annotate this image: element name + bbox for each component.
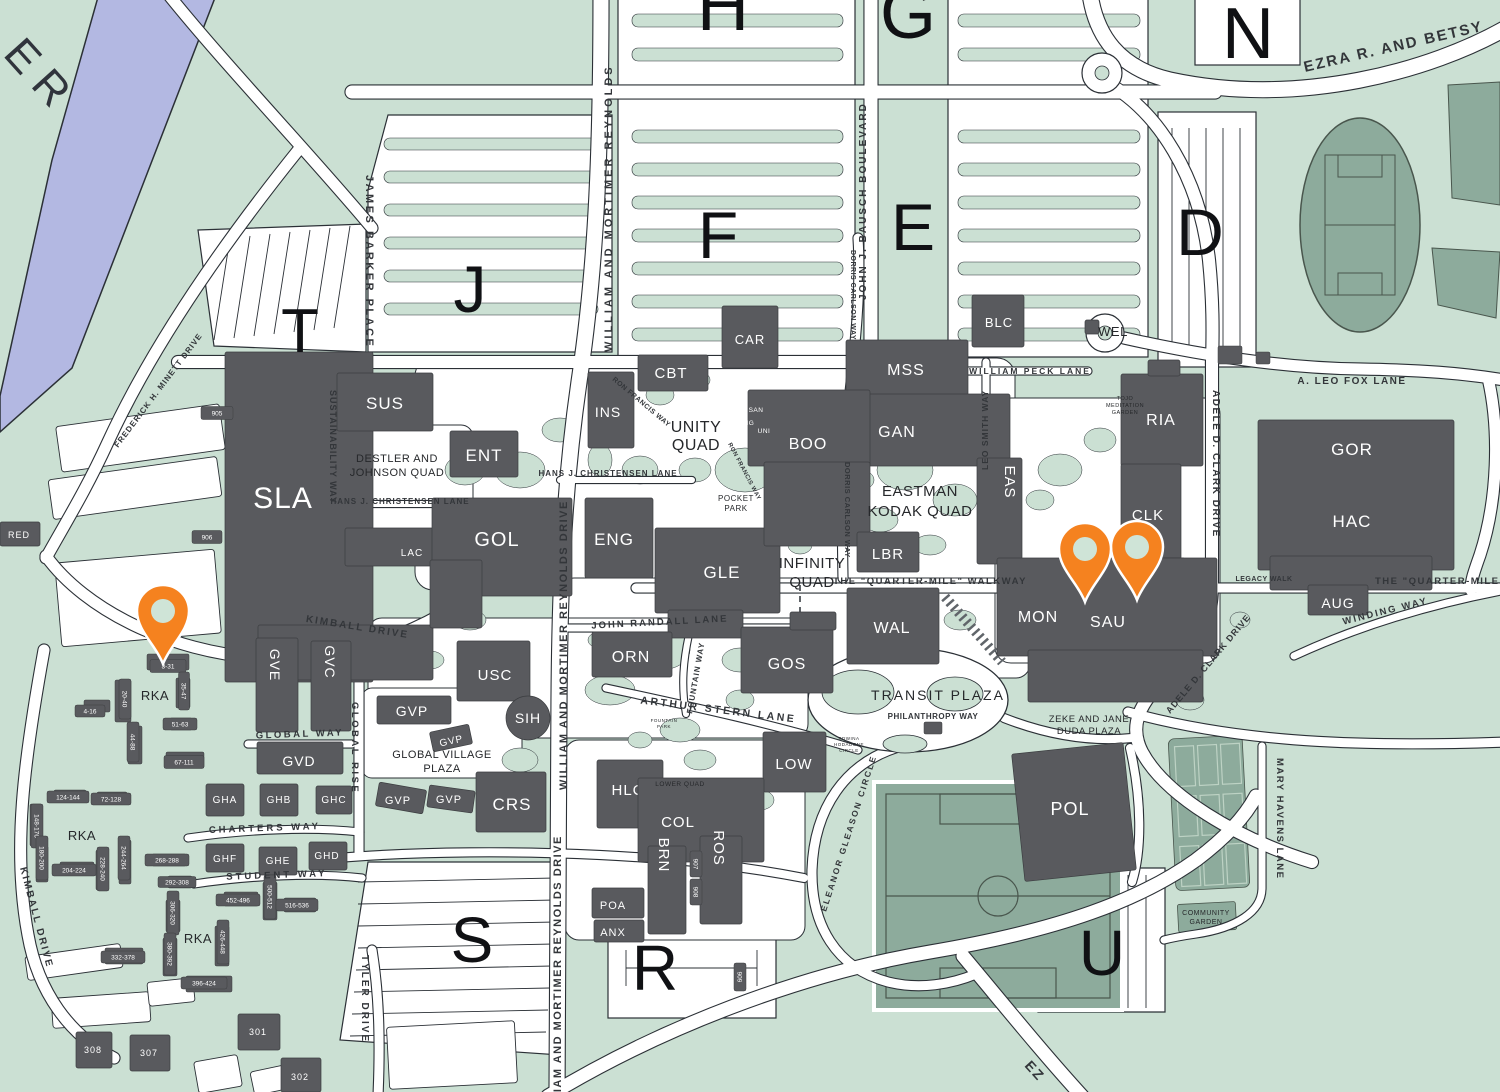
lawn-island <box>502 748 538 772</box>
building-label-eas: EAS <box>1001 465 1018 498</box>
building-label-mon: MON <box>1018 609 1058 626</box>
chip-180-200[interactable]: 180-200 <box>36 836 48 880</box>
chip-906[interactable]: 906 <box>192 531 222 544</box>
place-label-destler-johnson-quad-0: DESTLER AND <box>356 453 438 465</box>
street-label-tyler-drive: TYLER DRIVE <box>359 955 370 1043</box>
building-mon[interactable]: MON <box>997 558 1217 656</box>
building-b301[interactable]: 301 <box>238 1014 280 1050</box>
place-unity-quad: UNITYQUAD <box>671 419 722 454</box>
lot-letter-s: S <box>451 904 494 976</box>
chip-268-288[interactable]: 268-288 <box>145 854 189 866</box>
lot-letter-r: R <box>632 932 678 1004</box>
place-label-lower-quad-0: LOWER QUAD <box>655 781 704 788</box>
building-ghb[interactable]: GHB <box>260 784 298 816</box>
building-label-sih: SIH <box>515 710 541 726</box>
chip-label-909: 909 <box>736 972 743 983</box>
stands-east <box>1448 82 1500 205</box>
parking-strip <box>958 229 1140 242</box>
building-label-ghe: GHE <box>266 856 291 867</box>
parking-strip <box>958 262 1140 275</box>
building-label-ria: RIA <box>1146 412 1176 429</box>
lot-letter-t: T <box>281 297 319 366</box>
chip-label-228-240: 228-240 <box>99 857 106 881</box>
chip-label-44-88: 44-88 <box>129 734 136 751</box>
parking-strip <box>632 48 843 61</box>
building-brn[interactable]: BRN <box>648 838 686 934</box>
place-label-transit-plaza-0: TRANSIT PLAZA <box>871 687 1005 703</box>
lawn-island <box>1026 490 1054 510</box>
chip-label-35-47: 35-47 <box>180 683 187 700</box>
place-label-global-village-plaza-1: PLAZA <box>423 763 461 775</box>
building-b302[interactable]: 302 <box>281 1058 321 1092</box>
street-label-james-barker: JAMES BARKER PLACE <box>363 175 375 348</box>
building-wel-bldg[interactable] <box>1085 320 1099 334</box>
pin-hole <box>151 599 175 623</box>
chip-label-72-128: 72-128 <box>101 796 122 803</box>
lot-letter-f: F <box>698 198 738 272</box>
place-rka-3: RKA <box>184 931 212 946</box>
parking-strip <box>384 237 598 249</box>
place-uni: UNI <box>758 428 771 435</box>
building-label-low: LOW <box>775 756 812 773</box>
place-zeke-duda-plaza: ZEKE AND JANEDUDA PLAZA <box>1049 714 1129 737</box>
building-label-wal: WAL <box>873 620 910 637</box>
chip-228-240[interactable]: 228-240 <box>97 847 109 891</box>
chip-label-426-448: 426-448 <box>219 930 226 954</box>
street-label-reynolds-south: WILLIAM AND MORTIMER REYNOLDS DRIVE <box>552 835 564 1092</box>
street-label-carlson-south: DORRIS CARLSON WAY <box>843 462 852 558</box>
street-label-william-peck: WILLIAM PECK LANE <box>969 366 1091 376</box>
place-label-rka-1-0: RKA <box>141 688 169 703</box>
place-transit-plaza: TRANSIT PLAZA <box>871 687 1005 703</box>
parking-strip <box>958 14 1140 27</box>
building-label-ins: INS <box>595 404 621 420</box>
chip-label-148-176: 148-176 <box>33 814 40 838</box>
building-label-ent: ENT <box>466 446 503 465</box>
plaza-island-3 <box>883 735 927 753</box>
chip-292-308[interactable]: 292-308 <box>158 877 196 888</box>
pin-hole <box>1125 535 1149 559</box>
building-label-lbr: LBR <box>872 546 904 563</box>
building-sih[interactable]: SIH <box>506 696 550 740</box>
building-gha[interactable]: GHA <box>206 784 244 816</box>
building-label-poa: POA <box>600 900 626 912</box>
chip-500-512[interactable]: 500-512 <box>264 875 276 919</box>
chip-label-332-378: 332-378 <box>111 954 135 961</box>
building-blc[interactable]: BLC <box>972 295 1024 347</box>
chip-label-500-512: 500-512 <box>266 885 273 909</box>
chip-label-51-63: 51-63 <box>172 721 189 728</box>
place-label-vig-0: VIG <box>742 420 755 427</box>
chip-204-224[interactable]: 204-224 <box>52 864 96 876</box>
street-label-quarter-mile-east: THE "QUARTER-MILE" WALKWAY <box>1375 576 1500 587</box>
building-label-gvp-1: GVP <box>396 703 429 719</box>
building-car[interactable]: CAR <box>722 306 778 368</box>
lawn-island <box>1038 454 1082 486</box>
building-b307[interactable]: 307 <box>130 1035 170 1071</box>
place-label-unity-quad-0: UNITY <box>671 419 722 436</box>
place-label-eastman-kodak-quad-0: EASTMAN <box>882 483 958 500</box>
place-label-wel-0: WEL <box>1098 324 1128 339</box>
chip-909[interactable]: 909 <box>734 963 746 991</box>
building-label-ghd: GHD <box>314 851 339 862</box>
building-label-sla: SLA <box>253 482 313 515</box>
place-rka-2: RKA <box>68 828 96 843</box>
place-label-zeke-duda-plaza-0: ZEKE AND JANE <box>1049 714 1129 725</box>
lawn-island <box>1084 428 1116 452</box>
building-orn[interactable]: ORN <box>592 632 672 677</box>
pin-hole <box>1073 537 1097 561</box>
lot-letter-g: G <box>880 0 936 54</box>
building-ghd[interactable]: GHD <box>309 842 347 870</box>
building-usc[interactable]: USC <box>457 641 530 701</box>
minor-building <box>924 722 942 734</box>
place-label-zeke-duda-plaza-1: DUDA PLAZA <box>1057 726 1121 737</box>
street-label-clark-drive: ADELE D. CLARK DRIVE <box>1210 390 1221 538</box>
chip-426-448[interactable]: 426-448 <box>217 920 229 964</box>
chip-label-20-40: 20-40 <box>121 691 128 708</box>
campus-map-canvas[interactable]: SLALACSUSENTGOLENGGLEINSCBTCARMSSGANBOOB… <box>0 0 1500 1092</box>
place-lower-quad: LOWER QUAD <box>655 781 704 788</box>
chip-907[interactable]: 907 <box>690 851 702 877</box>
place-wel: WEL <box>1098 324 1128 339</box>
street-label-reynolds-mid: WILLIAM AND MORTIMER REYNOLDS DRIVE <box>558 500 570 790</box>
chip-label-244-264: 244-264 <box>120 846 127 870</box>
chip-516-536[interactable]: 516-536 <box>276 899 318 911</box>
place-label-community-garden-1: GARDEN <box>1190 919 1223 926</box>
building-label-hac: HAC <box>1333 512 1372 531</box>
building-gor[interactable]: GOR <box>1258 420 1454 590</box>
building-label-crs: CRS <box>493 795 532 814</box>
place-label-edwina-circle-0: EDWINA <box>839 736 860 741</box>
place-label-eastman-kodak-quad-1: KODAK QUAD <box>867 503 972 520</box>
building-sus[interactable]: SUS <box>337 373 433 431</box>
chip-380-392[interactable]: 380-392 <box>164 933 176 975</box>
lot-letter-e: E <box>891 190 935 264</box>
building-ins[interactable]: INS <box>588 372 634 448</box>
place-label-tojo-meditation-garden-1: MEDITATION <box>1106 403 1144 409</box>
building-aug[interactable]: AUG <box>1308 585 1368 615</box>
building-pol[interactable]: POL <box>1012 742 1137 881</box>
building-label-b308: 308 <box>84 1045 102 1055</box>
building-label-gle: GLE <box>703 563 740 582</box>
chip-label-180-200: 180-200 <box>38 846 45 870</box>
chip-306-320[interactable]: 306-320 <box>167 891 179 935</box>
place-san: SAN <box>749 407 764 414</box>
white-structure <box>386 1021 517 1090</box>
lot-letter-j: J <box>454 252 487 326</box>
place-label-uni-0: UNI <box>758 428 771 435</box>
street-label-christensen-2: HANS J. CHRISTENSEN LANE <box>538 469 677 478</box>
building-low[interactable]: LOW <box>763 732 826 792</box>
building-label-gvd: GVD <box>282 753 315 769</box>
chip-452-496[interactable]: 452-496 <box>216 894 260 906</box>
chip-label-204-224: 204-224 <box>62 867 86 874</box>
building-label-b301: 301 <box>249 1027 267 1037</box>
building-lbr[interactable]: LBR <box>857 532 919 572</box>
street-label-global-rise: GLOBAL RISE <box>349 702 360 794</box>
building-label-gol: GOL <box>474 529 519 551</box>
chip-244-264[interactable]: 244-264 <box>118 836 130 880</box>
building-label-boo: BOO <box>789 436 828 453</box>
chip-label-452-496: 452-496 <box>226 897 250 904</box>
building-label-blc: BLC <box>985 315 1013 330</box>
building-label-mss: MSS <box>887 362 925 379</box>
place-label-unity-quad-1: QUAD <box>672 437 720 454</box>
parking-strip <box>384 171 598 183</box>
chip-124-144[interactable]: 124-144 <box>47 791 89 803</box>
street-label-christensen-1: HANS J. CHRISTENSEN LANE <box>330 497 469 506</box>
place-label-destler-johnson-quad-1: JOHNSON QUAD <box>350 467 445 479</box>
place-label-pocket-park-0: POCKET <box>718 494 754 503</box>
street-label-quarter-mile: THE "QUARTER-MILE" WALKWAY <box>833 576 1027 587</box>
place-rka-1: RKA <box>141 688 169 703</box>
building-label-gve: GVE <box>267 649 283 682</box>
place-label-rka-3-0: RKA <box>184 931 212 946</box>
building-ghc[interactable]: GHC <box>316 786 352 814</box>
building-label-anx: ANX <box>600 927 626 939</box>
chip-332-378[interactable]: 332-378 <box>101 951 145 963</box>
building-gve[interactable]: GVE <box>256 638 298 732</box>
chip-44-88[interactable]: 44-88 <box>127 722 139 762</box>
building-label-gos: GOS <box>768 656 807 673</box>
building-eas[interactable]: EAS <box>977 458 1022 564</box>
building-label-gor: GOR <box>1331 440 1373 459</box>
chip-label-292-308: 292-308 <box>165 879 189 886</box>
building-label-b302: 302 <box>291 1072 309 1082</box>
building-label-ros: ROS <box>710 830 727 866</box>
place-label-edwina-circle-2: CIRCLE <box>839 748 859 753</box>
building-ros[interactable]: ROS <box>700 830 742 924</box>
parking-strip <box>632 130 843 143</box>
building-label-gvc: GVC <box>322 645 338 678</box>
building-eng[interactable]: ENG <box>585 498 653 578</box>
chip-label-67-111: 67-111 <box>174 759 194 766</box>
place-label-fountain-park-0: FOUNTAIN <box>651 718 678 723</box>
building-label-pol: POL <box>1050 799 1089 819</box>
parking-lot-j <box>368 115 612 352</box>
parking-strip <box>384 204 598 216</box>
building-label-cbt: CBT <box>655 365 688 382</box>
place-label-tojo-meditation-garden-2: GARDEN <box>1112 410 1139 416</box>
building-hac[interactable]: HAC <box>1333 512 1372 531</box>
place-label-edwina-circle-1: HODADONE <box>834 742 864 747</box>
lot-letter-u: U <box>1079 917 1125 989</box>
building-cbt[interactable]: CBT <box>638 355 708 391</box>
place-label-rka-2-0: RKA <box>68 828 96 843</box>
building-label-brn: BRN <box>655 838 672 873</box>
chip-67-111[interactable]: 67-111 <box>164 756 204 769</box>
chip-35-47[interactable]: 35-47 <box>179 672 190 710</box>
building-label-orn: ORN <box>612 649 651 666</box>
chip-4-16[interactable]: 4-16 <box>75 705 105 717</box>
building-red[interactable]: RED <box>0 522 40 546</box>
street-label-philanthropy: PHILANTHROPY WAY <box>888 712 979 721</box>
building-gvp-1[interactable]: GVP <box>377 696 451 724</box>
parking-strip <box>384 270 598 282</box>
street-label-leo-smith: LEO SMITH WAY <box>980 390 990 470</box>
building-label-ghf: GHF <box>213 854 237 865</box>
place-label-infinity-quad-0: INFINITY <box>779 555 846 572</box>
chip-label-906: 906 <box>202 534 213 541</box>
place-label-fountain-park-1: PARK <box>657 724 671 729</box>
building-label-red: RED <box>8 530 30 540</box>
parking-strip <box>384 138 598 150</box>
chip-72-128[interactable]: 72-128 <box>91 793 131 805</box>
lawn-island <box>628 732 652 748</box>
parking-strip <box>958 196 1140 209</box>
chip-908[interactable]: 908 <box>690 879 702 905</box>
building-poa[interactable]: POA <box>592 888 644 918</box>
building-label-eng: ENG <box>594 530 634 549</box>
lot-letter-d: D <box>1176 195 1224 269</box>
building-label-sau: SAU <box>1090 614 1126 631</box>
building-label-sus: SUS <box>366 394 404 413</box>
chip-label-380-392: 380-392 <box>166 942 173 966</box>
lot-letter-h: H <box>697 0 749 46</box>
street-label-mary-havens: MARY HAVENS LANE <box>1274 758 1285 879</box>
chip-label-516-536: 516-536 <box>285 902 309 909</box>
lot-letter-n: N <box>1222 0 1274 74</box>
street-label-bausch: JOHN J. BAUSCH BOULEVARD <box>858 102 869 300</box>
chip-label-268-288: 268-288 <box>155 857 179 864</box>
building-b308[interactable]: 308 <box>76 1032 112 1068</box>
chip-label-124-144: 124-144 <box>56 794 80 801</box>
street-label-sustainability: SUSTAINABILITY WAY <box>328 390 338 504</box>
chip-label-905: 905 <box>212 410 223 417</box>
place-label-community-garden-0: COMMUNITY <box>1182 910 1230 917</box>
building-label-car: CAR <box>735 332 765 347</box>
building-wal[interactable]: WAL <box>847 588 939 664</box>
building-label-gan: GAN <box>878 424 916 441</box>
place-label-san-0: SAN <box>749 407 764 414</box>
building-label-gha: GHA <box>213 795 238 806</box>
roundabout-north-island <box>1095 66 1109 80</box>
building-label-lac: LAC <box>401 548 423 559</box>
building-label-aug: AUG <box>1321 595 1354 611</box>
street-label-fox-lane: A. LEO FOX LANE <box>1297 376 1406 387</box>
street-label-carlson-north: DORRIS CARLSON WAY <box>849 250 856 340</box>
chip-label-908: 908 <box>692 887 699 898</box>
chip-905[interactable]: 905 <box>201 407 233 420</box>
building-ent[interactable]: ENT <box>450 431 518 477</box>
chip-label-396-424: 396-424 <box>192 980 216 987</box>
place-label-tojo-meditation-garden-0: TOJO <box>1117 396 1134 402</box>
parking-strip <box>384 303 598 315</box>
chip-label-907: 907 <box>692 859 699 870</box>
chip-3-31[interactable]: 3-31 <box>150 660 186 673</box>
building-gvc[interactable]: GVC <box>311 641 351 731</box>
building-crs[interactable]: CRS <box>476 772 546 832</box>
building-label-col: COL <box>661 814 695 831</box>
chip-label-4-16: 4-16 <box>83 708 96 715</box>
street-label-reynolds-north: WILLIAM AND MORTIMER REYNOLDS <box>603 64 615 352</box>
minor-building <box>1218 346 1242 364</box>
chip-51-63[interactable]: 51-63 <box>163 718 197 730</box>
chip-396-424[interactable]: 396-424 <box>181 977 227 989</box>
building-label-gvp-3: GVP <box>385 795 411 807</box>
building-label-usc: USC <box>478 667 513 684</box>
lawn-island <box>684 750 716 770</box>
building-label-ghc: GHC <box>321 795 346 806</box>
parking-strip <box>958 163 1140 176</box>
place-vig: VIG <box>742 420 755 427</box>
building-label-b307: 307 <box>140 1048 158 1058</box>
parking-strip <box>632 163 843 176</box>
street-label-legacy-walk: LEGACY WALK <box>1235 576 1292 583</box>
place-label-pocket-park-1: PARK <box>724 504 747 513</box>
building-gvd[interactable]: GVD <box>257 742 343 774</box>
building-label-ghb: GHB <box>267 795 292 806</box>
chip-label-306-320: 306-320 <box>169 901 176 925</box>
chip-20-40[interactable]: 20-40 <box>119 679 131 719</box>
place-label-infinity-quad-1: QUAD <box>789 574 834 591</box>
parking-strip <box>958 130 1140 143</box>
place-label-global-village-plaza-0: GLOBAL VILLAGE <box>392 749 492 761</box>
building-label-gvp-4: GVP <box>436 794 462 806</box>
minor-building <box>1256 352 1270 364</box>
building-ghf[interactable]: GHF <box>206 844 244 872</box>
